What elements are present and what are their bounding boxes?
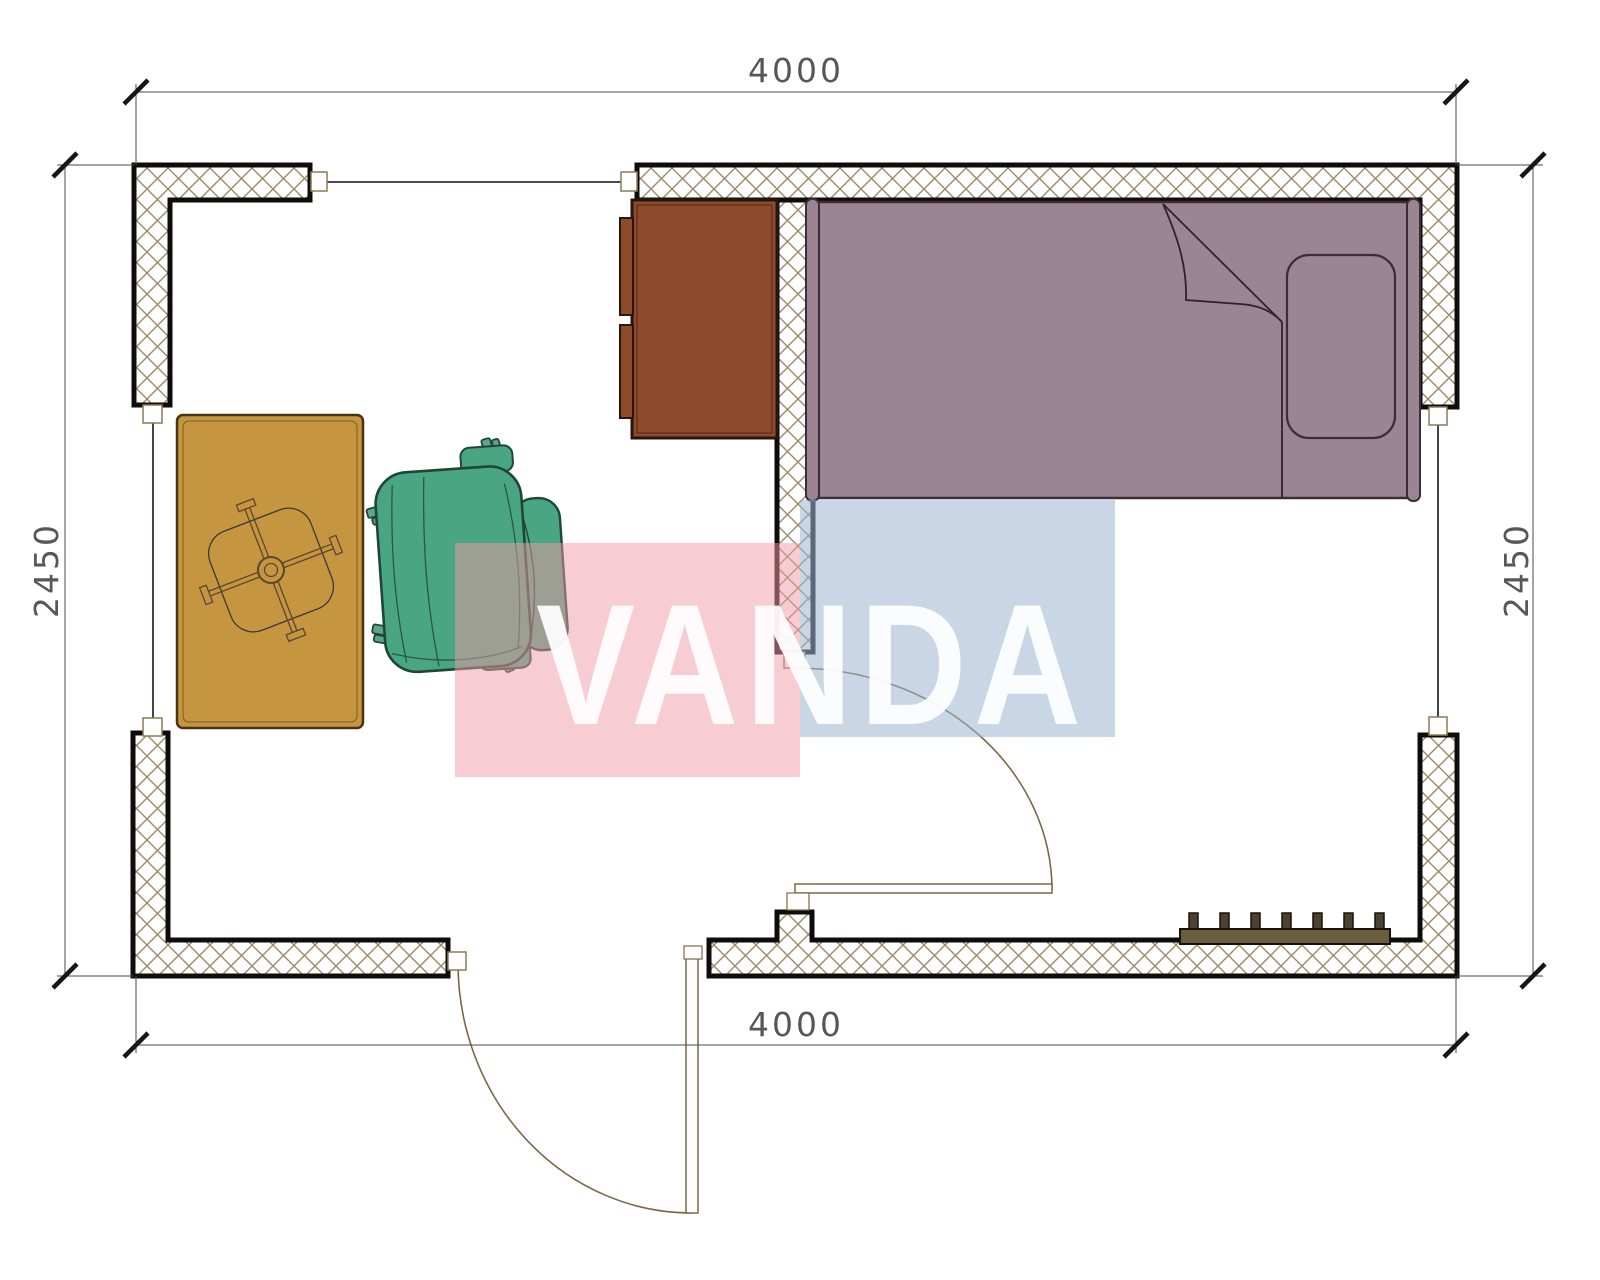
floor-plan-page: VANDA 4000 4000 2450 bbox=[0, 0, 1600, 1280]
interior-door-jamb bbox=[787, 893, 809, 910]
watermark-text: VANDA bbox=[536, 569, 1088, 761]
entry-door-wall-connector bbox=[448, 952, 466, 970]
interior-door-leaf bbox=[795, 884, 1052, 893]
dimension-label-right: 2450 bbox=[1497, 522, 1536, 618]
bed bbox=[806, 199, 1420, 501]
floor-plan-drawing: VANDA 4000 4000 2450 bbox=[0, 0, 1600, 1280]
window-right-connector-top bbox=[1429, 407, 1447, 425]
wardrobe-cabinet bbox=[620, 200, 777, 438]
dimension-label-bottom: 4000 bbox=[748, 1005, 844, 1044]
entry-door bbox=[448, 946, 702, 1213]
window-top-connector-left bbox=[311, 172, 327, 191]
radiator bbox=[1180, 913, 1390, 944]
window-right-connector-bottom bbox=[1429, 717, 1447, 735]
wardrobe-door-upper bbox=[620, 218, 633, 315]
entry-door-leaf bbox=[686, 957, 698, 1213]
entry-door-swing-arc bbox=[458, 963, 692, 1213]
bed-footboard bbox=[806, 199, 819, 501]
window-top-connector-right bbox=[621, 172, 637, 191]
dimension-label-left: 2450 bbox=[27, 522, 66, 618]
window-left-connector-bottom bbox=[143, 718, 162, 736]
wall-top-left bbox=[134, 165, 310, 405]
radiator-teeth bbox=[1189, 913, 1384, 930]
wardrobe-door-lower bbox=[620, 325, 633, 418]
wardrobe-body bbox=[632, 200, 777, 438]
window-left-connector-top bbox=[143, 405, 162, 423]
bed-pillow bbox=[1287, 255, 1395, 438]
table bbox=[177, 415, 366, 728]
wall-bottom-left bbox=[133, 733, 448, 976]
bed-headboard bbox=[1407, 199, 1420, 501]
radiator-bar bbox=[1180, 929, 1390, 944]
dimension-label-top: 4000 bbox=[748, 51, 844, 90]
entry-door-jamb bbox=[684, 946, 702, 959]
